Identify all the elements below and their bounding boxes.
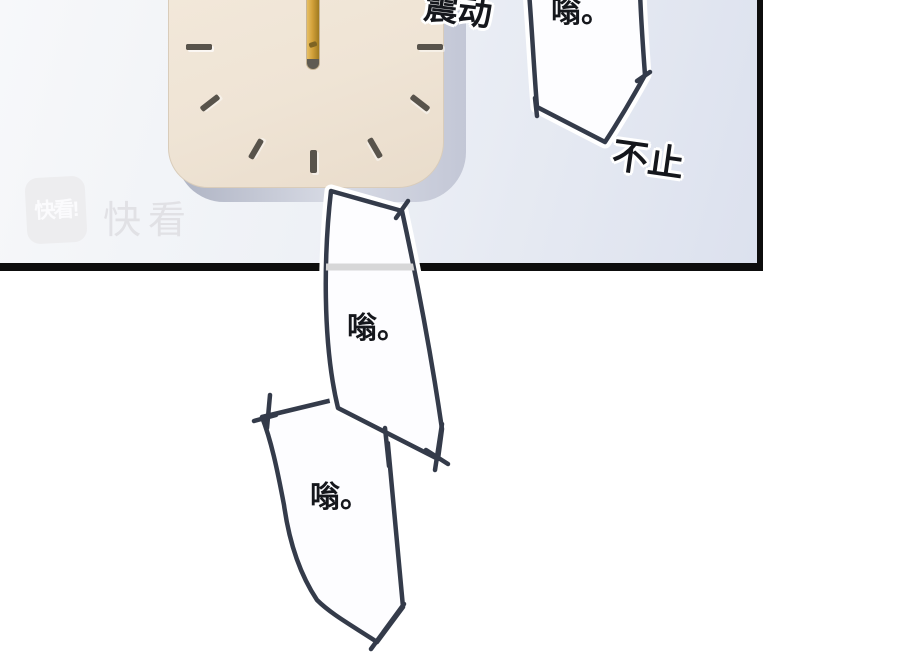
sfx-nonstop: 不止 [610, 137, 686, 183]
sfx-buzz-bottom: 嗡。 [310, 483, 370, 513]
sfx-buzz-middle: 嗡。 [347, 314, 407, 344]
sfx-buzz-top: 嗡。 [551, 0, 611, 28]
speech-bubbles-layer [0, 0, 900, 661]
panel-border-showthrough [314, 264, 426, 271]
comic-page: 快看! 快看 [0, 0, 900, 661]
